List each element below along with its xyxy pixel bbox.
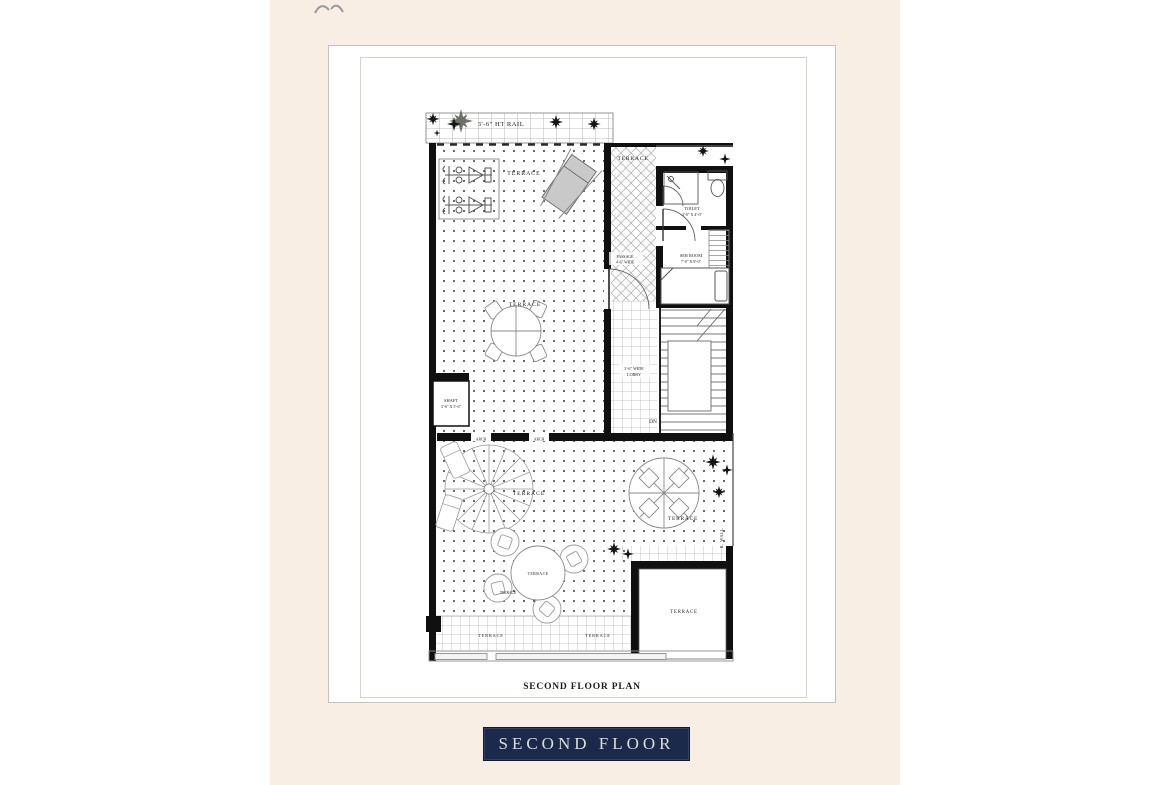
rail-label: 3'-6" HT RAIL: [478, 121, 525, 128]
lobby-label-2: LOBBY: [627, 372, 641, 377]
terrace-label-bottom-left: TERRACE: [478, 633, 504, 638]
content-panel: SHAFT 3'-6" X 5'-6" TOILET 4'-0" X 4'-0": [270, 0, 900, 785]
ladder-strip: [709, 230, 729, 268]
arch-label-right: ARCH: [534, 438, 545, 442]
arch-label-left: ARCH: [476, 438, 487, 442]
dn-label: DN: [649, 419, 657, 425]
plan-card: SHAFT 3'-6" X 5'-6" TOILET 4'-0" X 4'-0": [328, 45, 836, 703]
shaft-top-wall: [429, 373, 469, 381]
plan-sheet: SHAFT 3'-6" X 5'-6" TOILET 4'-0" X 4'-0": [360, 57, 807, 698]
right-outer-wall-lower: [726, 546, 733, 659]
shaft-size-label: 3'-6" X 5'-6": [441, 404, 462, 409]
toilet-size-label: 4'-0" X 4'-0": [682, 212, 703, 217]
terrace-label-lower-left: TERRACE: [513, 491, 545, 497]
plan-caption: SECOND FLOOR PLAN: [523, 682, 641, 692]
stair-void: [668, 341, 711, 411]
ser-room-size-label: 7'-0" X 8'-0": [681, 259, 702, 264]
terrace-label-table: TERRACE: [527, 571, 548, 576]
room-top-wall: [631, 561, 733, 569]
shaft-label: SHAFT: [444, 398, 458, 403]
bed: [661, 268, 729, 304]
corner-notch: [426, 616, 441, 632]
ser-room-label: SER ROOM: [680, 253, 702, 258]
terrace-label-table-small: TERRACE: [500, 591, 517, 595]
terrace-label-upper-center: TERRACE: [509, 302, 541, 308]
terrace-label-lower-right: TERRACE: [668, 516, 698, 522]
lobby-label-1: 3'-6" WIDE: [624, 366, 644, 371]
shaft-room: SHAFT 3'-6" X 5'-6": [433, 381, 469, 426]
terrace-label-bottom-right: TERRACE: [585, 633, 611, 638]
right-tile-band: [619, 546, 733, 561]
staircase: [660, 306, 726, 433]
floor-label-button[interactable]: SECOND FLOOR: [483, 727, 690, 761]
toilet-room: [663, 171, 727, 206]
round-table-upper: [484, 300, 547, 363]
r-wall-label: R. WALL: [719, 528, 724, 549]
terrace-label-gym: TERRACE: [507, 171, 540, 177]
terrace-label-room: TERRACE: [670, 610, 697, 615]
floor-plan-drawing: SHAFT 3'-6" X 5'-6" TOILET 4'-0" X 4'-0": [361, 58, 806, 697]
lobby: 3'-6" WIDE LOBBY: [619, 364, 650, 378]
decorative-mark: [312, 0, 346, 14]
passage-label-2: 4'-6" WIDE: [616, 261, 635, 265]
terrace-label-upper-right: TERRACE: [617, 156, 648, 162]
ser-room: SER ROOM 7'-0" X 8'-0": [661, 209, 729, 304]
passage-label-1: PASSAGE: [617, 255, 635, 259]
toilet-label: TOILET: [684, 206, 700, 211]
room-left-wall: [631, 561, 639, 659]
